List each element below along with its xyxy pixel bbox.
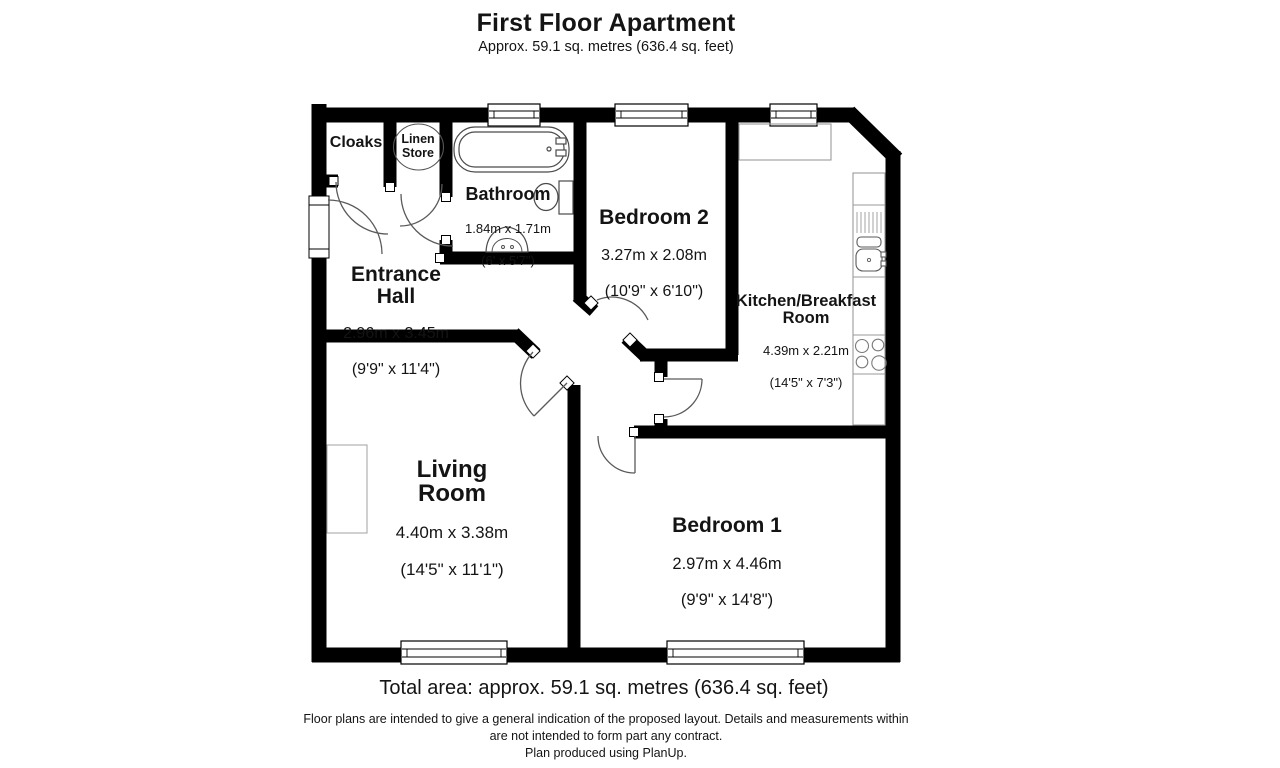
room-metric: 2.97m x 4.46m xyxy=(672,555,782,574)
room-imperial: (14'5" x 7'3") xyxy=(736,376,876,390)
room-name: Entrance Hall xyxy=(343,264,449,307)
room-imperial: (9'9" x 11'4") xyxy=(343,361,449,379)
window-bathroom-top xyxy=(488,104,540,126)
living-room-recess xyxy=(327,445,367,533)
front-door xyxy=(309,196,329,258)
living-door-leaf xyxy=(534,383,567,416)
bathtub-icon xyxy=(454,127,569,172)
living-door-arc xyxy=(521,352,534,416)
room-metric: 1.84m x 1.71m xyxy=(465,222,551,236)
page-title: First Floor Apartment xyxy=(477,10,736,37)
room-imperial: (14'5" x 11'1") xyxy=(396,560,508,579)
room-metric: 2.96m x 3.45m xyxy=(343,325,449,343)
room-name: Living Room xyxy=(396,458,508,505)
room-label-linen-store: Linen Store xyxy=(401,132,434,160)
room-name: Bedroom 1 xyxy=(672,515,782,537)
floorplan-drawing xyxy=(0,0,1280,768)
window-kitchen-top xyxy=(770,104,817,126)
drainer-lines xyxy=(857,212,881,233)
room-metric: 4.39m x 2.21m xyxy=(736,344,876,358)
room-label-bedroom1: Bedroom 1 2.97m x 4.46m (9'9" x 14'8") xyxy=(672,497,782,628)
credit-text: Plan produced using PlanUp. xyxy=(525,745,687,762)
room-name: Bedroom 2 xyxy=(599,207,709,229)
room-label-kitchen: Kitchen/Breakfast Room 4.39m x 2.21m (14… xyxy=(736,275,876,408)
room-imperial: (9'9" x 14'8") xyxy=(672,591,782,610)
total-area: Total area: approx. 59.1 sq. metres (636… xyxy=(379,677,828,699)
room-name: Kitchen/Breakfast Room xyxy=(736,293,876,326)
room-label-living-room: Living Room 4.40m x 3.38m (14'5" x 11'1"… xyxy=(396,440,508,597)
room-label-bedroom2: Bedroom 2 3.27m x 2.08m (10'9" x 6'10") xyxy=(599,189,709,319)
room-imperial: (6' x 5'7") xyxy=(465,254,551,268)
kitchen-sink-icon xyxy=(856,237,886,271)
window-bedroom1-bottom xyxy=(667,641,804,664)
cloaks-door-arc xyxy=(336,182,388,234)
room-name: Bathroom xyxy=(465,185,551,204)
room-metric: 3.27m x 2.08m xyxy=(599,247,709,265)
room-imperial: (10'9" x 6'10") xyxy=(599,283,709,301)
kitchen-door-arc xyxy=(664,379,702,417)
room-label-cloaks: Cloaks xyxy=(330,134,382,151)
room-label-entrance-hall: Entrance Hall 2.96m x 3.45m (9'9" x 11'4… xyxy=(343,246,449,397)
floorplan-page: First Floor Apartment Approx. 59.1 sq. m… xyxy=(0,0,1280,768)
window-bedroom2-top xyxy=(615,104,688,126)
disclaimer-text: Floor plans are intended to give a gener… xyxy=(303,711,908,744)
room-metric: 4.40m x 3.38m xyxy=(396,523,508,542)
bedroom1-door-arc xyxy=(598,436,635,473)
page-subtitle: Approx. 59.1 sq. metres (636.4 sq. feet) xyxy=(478,39,734,55)
window-living-bottom xyxy=(401,641,507,664)
linen-door-arc xyxy=(400,184,442,226)
room-label-bathroom: Bathroom 1.84m x 1.71m (6' x 5'7") xyxy=(465,167,551,286)
